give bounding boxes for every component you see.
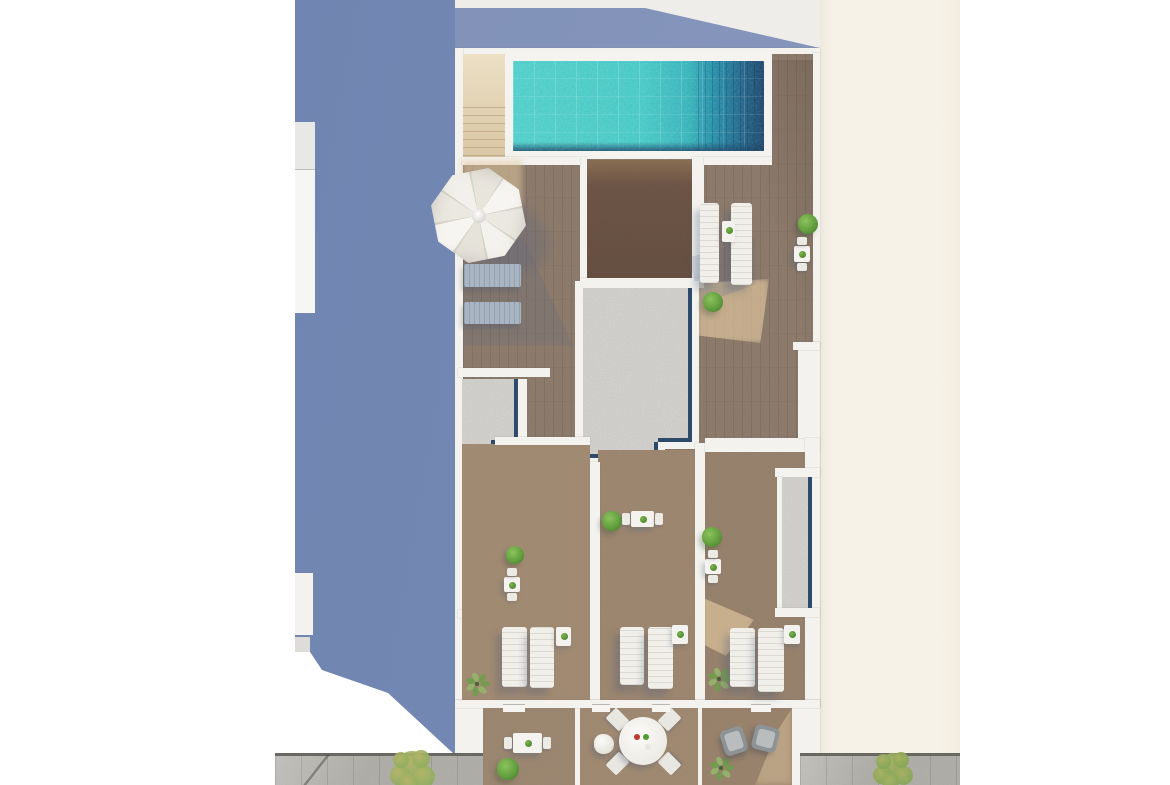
dining-chair — [622, 513, 630, 525]
potted-plant — [561, 633, 568, 640]
left-planter-top-wall — [458, 368, 550, 377]
dark-wood-room — [587, 160, 692, 278]
wall-a-b — [590, 462, 600, 703]
tableware-item — [643, 734, 649, 740]
bush-plant — [506, 546, 524, 564]
door-threshold — [592, 704, 610, 712]
armchair-cushion — [755, 728, 776, 749]
neighbour-cream-wall — [820, 0, 960, 785]
tableware-item — [634, 734, 640, 740]
dining-chair — [708, 550, 718, 558]
table-plant — [640, 516, 647, 523]
dining-chair — [507, 568, 517, 576]
paving-left-edge — [275, 753, 483, 756]
dining-chair — [655, 513, 663, 525]
east-thick-wall — [798, 342, 820, 438]
dining-chair — [708, 575, 718, 583]
plant-center — [717, 677, 721, 681]
core-edge-east — [688, 288, 692, 442]
right-planter — [775, 468, 820, 617]
tree-foliage — [893, 752, 909, 768]
stair-block — [463, 54, 505, 158]
sun-lounger-white — [620, 627, 644, 685]
side-table — [556, 627, 571, 646]
right-planter-edge — [808, 477, 812, 608]
bush-plant — [703, 292, 723, 312]
sun-lounger-white — [648, 627, 673, 689]
pool-coping — [505, 53, 772, 159]
armchair-cushion — [724, 730, 745, 752]
wall-b-c — [695, 443, 705, 703]
dining-chair — [797, 263, 807, 271]
beanbag-pouf — [594, 734, 614, 754]
leafy-plant — [707, 754, 735, 782]
side-table — [672, 625, 688, 644]
sun-lounger-white — [731, 203, 752, 285]
door-threshold — [503, 704, 525, 712]
texture-noise — [462, 379, 518, 440]
pool-terrace-wall-right — [704, 157, 772, 165]
door-threshold — [751, 704, 771, 712]
side-table — [784, 625, 800, 644]
tree-foliage — [882, 774, 898, 785]
door-threshold — [652, 704, 670, 712]
ground-tree — [869, 746, 917, 785]
texture-noise — [598, 450, 695, 700]
wall-white-step — [295, 637, 310, 652]
tree-foliage — [876, 754, 890, 768]
sun-lounger-white — [700, 203, 719, 283]
pool-water — [513, 61, 764, 151]
rooftop-render — [0, 0, 1170, 785]
round-dining-table — [619, 717, 667, 765]
ground-tree — [385, 743, 439, 785]
potted-plant — [677, 631, 684, 638]
leafy-plant — [705, 665, 733, 693]
stair-steps — [463, 100, 505, 158]
plant-center — [475, 682, 479, 686]
sun-lounger-white — [530, 627, 554, 688]
east-wall-cap — [793, 342, 820, 350]
wall-panel-lower — [295, 170, 315, 313]
texture-noise — [587, 160, 692, 278]
table-plant — [799, 251, 806, 258]
sun-lounger-white — [502, 627, 527, 687]
sun-lounger-white — [730, 628, 755, 687]
dining-chair — [504, 737, 512, 749]
plant-center — [719, 766, 723, 770]
potted-plant — [789, 631, 796, 638]
sun-lounger-white — [758, 628, 784, 692]
table-plant — [509, 582, 516, 589]
table-plant — [710, 564, 717, 571]
tree-foliage — [412, 750, 430, 768]
dining-chair — [543, 737, 551, 749]
bush-plant — [702, 527, 722, 547]
patio-b-floor — [598, 450, 695, 700]
patio-c-north-wall — [705, 438, 820, 452]
right-planter-top-wall — [775, 468, 820, 477]
dining-chair — [797, 237, 807, 245]
right-planter-gravel — [782, 477, 808, 608]
wall-white-block — [295, 573, 313, 635]
leafy-plant — [463, 670, 491, 698]
left-planter-cap-wide — [518, 379, 527, 440]
sun-lounger-gray — [464, 302, 521, 324]
texture-noise — [513, 61, 764, 151]
sun-lounger-gray — [464, 264, 521, 287]
side-table — [722, 221, 735, 242]
texture-noise — [782, 477, 808, 608]
dining-chair — [507, 593, 517, 601]
umbrella-pole-knob — [470, 207, 487, 224]
potted-plant — [726, 227, 733, 234]
patio-a-north-wall — [495, 437, 590, 445]
tableware-item — [645, 744, 651, 750]
core-edge-step — [658, 438, 692, 442]
table-plant — [525, 740, 532, 747]
left-planter-gravel-wide — [462, 379, 518, 440]
dark-room-west-wall — [580, 157, 587, 281]
right-white-void — [960, 0, 1170, 785]
bush-plant — [798, 214, 818, 234]
right-planter-bottom-wall — [775, 608, 820, 617]
bush-plant — [497, 758, 519, 780]
wall-panel-upper — [295, 122, 315, 170]
bush-plant — [602, 511, 622, 531]
